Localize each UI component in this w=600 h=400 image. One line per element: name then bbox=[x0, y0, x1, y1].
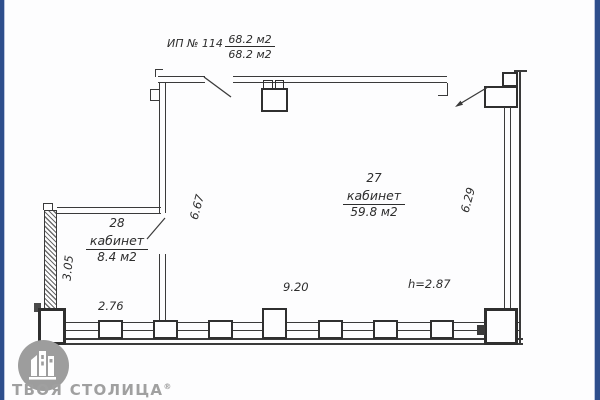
right-wall bbox=[504, 107, 511, 310]
unit-number-label: ИП № 114 bbox=[167, 37, 223, 50]
scan-border-left bbox=[0, 0, 4, 400]
scan-border-right bbox=[595, 0, 600, 400]
window-mullion bbox=[373, 320, 398, 339]
center-pier bbox=[262, 308, 287, 339]
window-mullion bbox=[98, 320, 123, 339]
corner-shaft-small bbox=[502, 72, 518, 87]
dimension-room28-depth: 3.05 bbox=[60, 255, 77, 282]
watermark-brand-text: ТВОЯ СТОЛИЦА® bbox=[12, 381, 171, 399]
right-wall-outer-line bbox=[519, 72, 521, 343]
dimension-right-depth: 6.29 bbox=[458, 186, 478, 214]
room27-number: 27 bbox=[332, 172, 416, 185]
room27-area: 59.8 м2 bbox=[332, 205, 416, 220]
top-wall-left-segment bbox=[158, 76, 205, 83]
dimension-ceiling-height: h=2.87 bbox=[408, 277, 451, 291]
window-mullion bbox=[430, 320, 454, 339]
room28-left-wall-cap bbox=[43, 203, 53, 210]
corner-shaft-box bbox=[484, 86, 518, 108]
total-area-numerator: 68.2 м2 bbox=[226, 33, 274, 46]
entrance-arrow-head bbox=[455, 101, 463, 107]
room28-label: 28 кабинет 8.4 м2 bbox=[83, 217, 151, 265]
total-area-denominator: 68.2 м2 bbox=[226, 48, 274, 61]
interior-wall-bracket bbox=[150, 89, 159, 101]
scanned-floor-plan-page: ИП № 114 68.2 м2 68.2 м2 27 кабинет 59.8… bbox=[0, 0, 600, 400]
top-corner-tick bbox=[155, 69, 163, 77]
room27-name: кабинет bbox=[343, 189, 405, 205]
room28-left-wall bbox=[44, 210, 57, 312]
room27-label: 27 кабинет 59.8 м2 bbox=[332, 172, 416, 220]
bottom-wall-outer-line bbox=[33, 343, 523, 345]
right-wall-top-tick bbox=[514, 70, 527, 72]
room28-top-wall bbox=[57, 207, 161, 214]
dimension-left-depth: 6.67 bbox=[187, 193, 207, 221]
right-corner-column bbox=[484, 308, 518, 345]
registered-mark: ® bbox=[163, 382, 171, 391]
brand-name: ТВОЯ СТОЛИЦА bbox=[12, 381, 163, 399]
room28-number: 28 bbox=[83, 217, 151, 230]
room28-name: кабинет bbox=[86, 234, 148, 250]
right-column-notch bbox=[477, 325, 485, 335]
interior-wall-upper bbox=[159, 83, 166, 213]
dimension-room28-width: 2.76 bbox=[98, 299, 124, 313]
window-mullion bbox=[318, 320, 343, 339]
dimension-room27-width: 9.20 bbox=[283, 280, 309, 294]
room28-area: 8.4 м2 bbox=[83, 250, 151, 265]
interior-wall-lower bbox=[159, 254, 166, 324]
window-mullion bbox=[153, 320, 178, 339]
top-wall-end-cap bbox=[438, 83, 448, 96]
window-mullion bbox=[208, 320, 233, 339]
vent-shaft-box bbox=[261, 88, 288, 112]
door-swing-line bbox=[204, 77, 231, 97]
